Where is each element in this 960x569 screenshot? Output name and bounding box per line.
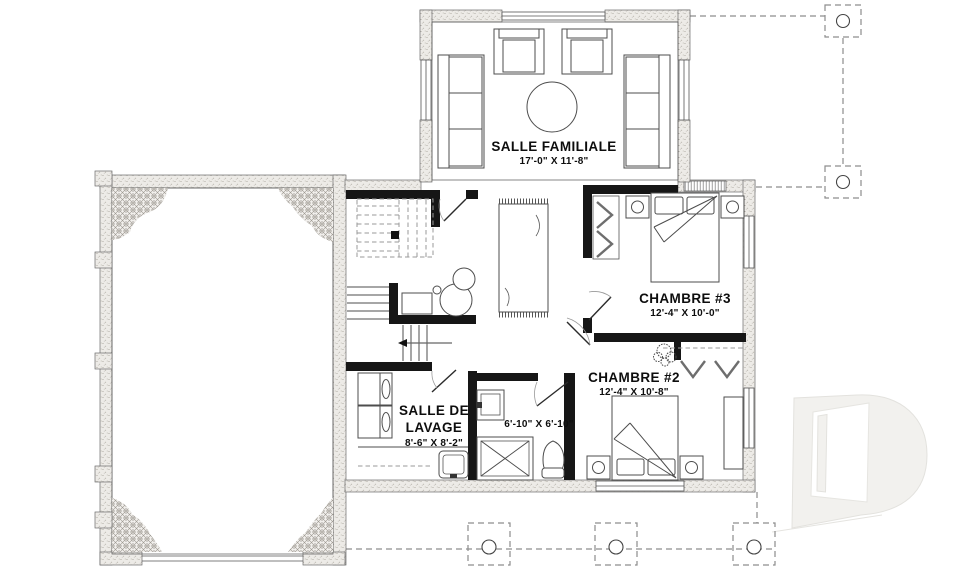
room-dims-bedroom2: 12'-4" X 10'-8" xyxy=(599,387,669,398)
window xyxy=(684,181,726,191)
dessins-logo-watermark xyxy=(772,395,927,532)
nightstand-icon xyxy=(626,196,649,218)
sofa-icon xyxy=(624,55,670,168)
post-column xyxy=(391,231,399,239)
drain-icon xyxy=(433,286,441,294)
closet-bifold-doors xyxy=(593,196,619,259)
footing-pad xyxy=(288,498,333,552)
footing-pad xyxy=(112,188,168,240)
door-leaf xyxy=(589,297,611,320)
sofa-icon xyxy=(438,55,484,168)
shower-icon xyxy=(477,437,533,480)
plant-icon xyxy=(654,344,677,366)
nightstand-icon xyxy=(721,196,744,218)
armchair-icon xyxy=(562,29,612,74)
room-label-family: SALLE FAMILIALE xyxy=(491,139,616,154)
bed-icon xyxy=(651,193,719,282)
footing-pad xyxy=(112,498,162,552)
footing-pad xyxy=(278,188,333,242)
wall-pilaster xyxy=(95,171,112,186)
wall-pilaster xyxy=(95,353,112,369)
wall-pilaster xyxy=(95,252,112,268)
room-dims-laundry: 8'-6" X 8'-2" xyxy=(405,438,463,449)
garage xyxy=(95,171,346,565)
water-heater-icon xyxy=(453,268,475,290)
round-table-icon xyxy=(527,82,577,132)
room-dims-family: 17'-0" X 11'-8" xyxy=(520,156,589,167)
door-leaf xyxy=(537,382,568,406)
room-label-bedroom3: CHAMBRE #3 xyxy=(639,291,731,306)
armchair-icon xyxy=(494,29,544,74)
wall-pilaster xyxy=(95,466,112,482)
deck-post-icon xyxy=(837,15,850,28)
nightstand-icon xyxy=(680,456,703,479)
room-dims-bedroom3: 12'-4" X 10'-0" xyxy=(650,308,720,319)
bedroom2 xyxy=(567,318,746,480)
wall-pilaster xyxy=(95,512,112,528)
dresser-icon xyxy=(724,397,743,469)
bathroom xyxy=(477,382,568,480)
room-dims-bathroom: 6'-10" X 6'-10" xyxy=(504,419,574,430)
vanity-icon xyxy=(402,293,432,314)
deck-post-icon xyxy=(747,540,761,554)
room-label-bedroom2: CHAMBRE #2 xyxy=(588,370,680,385)
washer-icon xyxy=(358,373,392,405)
deck-post-icon xyxy=(609,540,623,554)
nightstand-icon xyxy=(587,456,610,479)
door-leaf xyxy=(444,199,466,221)
bathroom-sink-icon xyxy=(477,390,504,420)
bed-icon xyxy=(612,396,678,480)
deck-post-icon xyxy=(482,540,496,554)
room-label-laundry-line1: SALLE DE xyxy=(399,403,469,418)
toilet-icon xyxy=(542,441,564,478)
door-leaf xyxy=(432,370,456,392)
deck-post-icon xyxy=(837,176,850,189)
floor-plan: SALLE FAMILIALE 17'-0" X 11'-8" CHAMBRE … xyxy=(0,0,960,569)
hall-rug-icon xyxy=(499,201,548,315)
dryer-icon xyxy=(358,406,392,438)
room-label-laundry-line2: LAVAGE xyxy=(406,420,463,435)
laundry-sink-icon xyxy=(439,451,468,478)
